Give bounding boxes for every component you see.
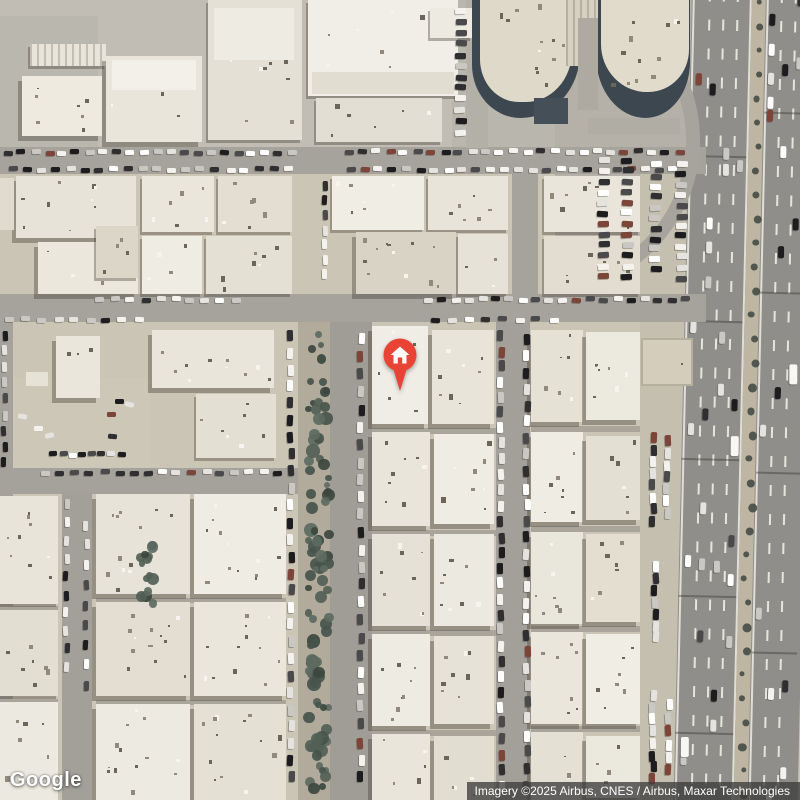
map-building [218,176,292,232]
map-building [531,330,583,422]
map-parked-car [359,562,365,573]
map-parked-car [181,167,190,172]
map-parked-car [597,211,608,218]
map-parked-car [357,422,363,433]
map-roof-detail [677,21,680,24]
map-parked-car [359,633,365,644]
map-building [428,176,508,230]
map-roof-detail [473,469,477,474]
map-parked-car [357,650,363,661]
map-parked-car [64,591,69,601]
map-parked-car [1,344,7,354]
map-parked-car [675,232,686,238]
map-parked-car [544,297,553,302]
map-roof-detail [256,559,260,562]
map-parked-car [86,318,95,323]
map-parked-car [523,663,530,674]
map-building [372,432,430,526]
map-roof-detail [567,773,571,778]
map-parked-car [288,150,297,155]
map-roof-detail [175,224,179,227]
map-parked-car [153,148,162,153]
map-mall-entry [534,98,568,124]
map-parked-car [22,166,31,171]
map-vehicle [760,424,767,436]
map-roof-detail [367,273,369,276]
map-parked-car [634,148,643,153]
map-parked-car [356,439,363,450]
map-vehicle [727,574,733,586]
map-parked-car [454,107,465,114]
map-roof-detail [260,740,262,743]
map-tree [315,702,321,708]
map-tree [305,609,313,617]
map-roof-detail [458,696,460,698]
map-roof-detail [453,467,456,469]
map-parked-car [499,453,505,464]
map-roof-detail [208,359,212,361]
map-parked-car [651,266,662,272]
map-roof-detail [37,88,39,89]
map-vehicle [711,689,717,701]
map-parked-car [83,620,88,630]
map-roof-detail [131,649,135,654]
map-roof-detail [245,120,248,122]
map-tree [307,677,321,691]
map-parked-car [172,295,181,300]
map-vehicle [780,146,786,158]
map-parked-car [497,377,503,388]
map-vehicle [782,680,788,692]
map-parked-car [523,448,530,459]
map-roof-detail [67,352,71,356]
map-building [194,494,286,594]
map-parked-car [273,471,282,476]
map-parked-car [37,318,46,323]
map-vehicle [731,436,739,456]
map-parked-car [16,149,25,154]
map-roof-detail [392,184,395,187]
map-building [356,232,456,294]
map-parked-car [65,554,70,564]
map-parked-car [650,455,656,466]
map-roof-detail [657,57,661,61]
map-parked-car [499,547,505,558]
map-parked-car [358,718,364,729]
map-parked-car [69,317,78,322]
map-roof-detail [570,397,574,400]
map-parked-car [651,584,657,595]
map-roof-detail [47,755,50,759]
map-parked-car [255,166,264,171]
map-parked-car [83,521,88,531]
map-parked-car [152,166,161,171]
map-roof-detail [135,709,138,712]
map-parked-car [187,470,196,475]
map-parked-car [651,597,657,608]
map-parked-car [497,406,504,417]
map-parked-car [101,469,110,474]
map-parked-car [287,687,293,698]
map-parked-car [525,745,531,756]
map-roof-detail [576,708,579,710]
map-building [586,634,640,724]
map-roof-detail [392,330,395,334]
map-parked-car [677,213,688,219]
map-roof-detail [466,674,470,680]
map-parked-car [55,317,64,322]
map-parked-car [288,704,294,715]
map-tree [149,599,157,607]
map-tree [320,402,329,411]
map-building [372,734,430,800]
map-roof-detail [593,396,596,398]
map-vehicle [731,399,737,411]
map-parked-car [85,539,90,549]
map-median-bush [739,695,745,701]
map-roof-detail [600,542,604,546]
map-parked-car [525,401,531,412]
map-roof-detail [544,512,546,514]
map-roof-detail [558,608,562,613]
map-roof-detail [23,226,25,229]
map-parked-car [322,194,328,204]
map-parked-car [677,253,688,259]
map-parked-car [118,452,126,457]
map-parked-car [289,636,295,647]
map-vehicle [782,64,788,76]
map-building [194,704,286,800]
map-parked-car [83,640,89,650]
map-parked-car [424,298,433,303]
map-roof-detail [621,51,625,54]
map-parked-car [550,318,559,323]
map-roof-detail [441,497,445,503]
map-roof-detail [331,134,333,137]
map-parked-car [676,150,685,155]
map-parked-car [246,150,255,155]
map-parked-car [651,760,657,771]
map-median-bush [742,623,751,632]
map-roof-detail [258,264,261,266]
map-parked-car [158,469,167,474]
map-roof-detail [42,723,44,725]
map-roof-detail [400,551,404,555]
map-roof-detail [473,195,475,196]
map-roof-detail [588,253,592,257]
map-roof-detail [168,625,171,627]
map-parked-car [260,469,269,474]
map-parked-car [666,740,672,751]
map-roof-detail [541,652,544,655]
map-roof-detail [225,367,227,369]
map-roof-detail [420,15,424,20]
map-roof-detail [29,645,33,649]
map-parked-car [287,671,294,682]
map-roof-detail [239,444,243,448]
map-parked-car [287,534,293,545]
map-vehicle [681,737,689,757]
map-parked-car [358,578,364,589]
map-tree [141,551,148,558]
map-roof-detail [101,281,104,284]
map-building [434,434,494,524]
map-parked-car [139,166,148,171]
map-roof-detail [629,36,633,41]
map-parked-car [371,148,380,153]
map-parked-car [286,755,293,766]
map-roof-detail [604,707,606,709]
map-parked-car [203,469,212,474]
map-roof-detail [252,261,256,265]
map-mall-strip [578,18,598,110]
map-parked-car [569,167,578,172]
map-roof-detail [550,193,554,199]
map-parked-car [523,368,529,379]
map-parked-car [558,297,567,303]
map-parked-car [650,184,661,190]
map-vehicle [696,73,702,85]
map-roof-detail [255,574,258,577]
map-roof-detail [177,115,179,117]
map-roof-detail [433,246,435,248]
map-tree [324,530,333,539]
map-roof-detail [363,260,367,263]
map-parked-car [599,179,610,185]
map-parked-car [117,317,126,322]
map-parked-car [32,149,41,154]
map-roof-detail [556,656,559,658]
map-parked-car [180,149,189,154]
map-tree [305,667,312,674]
map-roof-detail [626,270,630,273]
map-parked-car [142,298,151,303]
map-roof-detail [107,770,110,773]
map-roof-detail [143,717,146,720]
map-building [30,44,106,66]
map-parked-car [361,167,370,172]
map-parked-car [623,167,634,173]
map-parked-car [647,150,656,155]
map-roof-detail [233,669,237,674]
location-marker[interactable] [380,336,420,393]
map-roof-detail [200,419,202,421]
map-median [733,0,766,800]
map-parked-car [359,405,365,416]
map-roof-detail [471,488,475,491]
map-parked-car [323,226,328,236]
map-roof-detail [327,64,330,67]
map-parked-car [83,659,88,669]
map-roof-detail [16,720,19,723]
map-median-bush [741,575,747,581]
map-parked-car [496,577,503,588]
map-parked-car [651,173,662,179]
map-parked-car [215,471,224,476]
map-roof-detail [174,773,177,775]
map-parked-car [95,297,104,302]
map-roof-detail [615,386,619,391]
map-roof-detail [47,556,51,558]
map-parked-car [437,296,446,301]
map-parked-car [454,129,465,136]
map-vehicle [789,364,797,384]
map-walled-lot [641,338,693,386]
map-roof-detail [184,244,187,248]
map-parked-car [623,242,634,248]
map-vehicle [726,636,732,648]
map-parked-car [3,410,8,420]
map-parked-car [498,609,505,620]
map-parked-car [499,346,506,357]
map-roof-detail [396,707,400,712]
map-parked-car [270,165,279,171]
map-roof-detail [393,782,395,784]
map-parked-car [288,738,294,749]
map-parked-car [498,641,505,652]
map-tree [305,585,312,592]
map-parked-car [322,239,327,249]
map-roof-detail [552,39,555,43]
map-parked-car [3,393,8,403]
map-roof-detail [553,597,556,599]
map-roof-detail [259,67,263,72]
map-roof-detail [128,570,132,573]
map-roof-detail [233,182,237,185]
map-parked-car [650,468,657,479]
map-parked-car [598,252,609,259]
map-roof-detail [139,526,141,529]
map-roof-detail [106,572,110,576]
map-parked-car [663,495,669,506]
map-roof-detail [487,441,491,445]
map-pole-shadow [678,595,736,598]
map-vehicle [756,607,762,619]
map-vehicle [685,555,691,567]
map-vehicle [793,219,799,231]
map-parked-car [514,167,523,172]
map-roof-detail [184,675,187,678]
map-vehicle [702,408,708,420]
map-roof-detail [598,591,602,595]
map-parked-car [531,316,540,321]
map-parked-car [3,331,8,341]
map-building [586,332,640,420]
map-tree [305,466,315,476]
map-building [0,610,58,696]
map-parked-car [675,171,686,177]
map-roof-detail [611,83,615,86]
map-parked-car [286,499,293,510]
map-parked-car [621,188,632,194]
map-roof-detail [363,238,367,243]
map-parked-car [456,40,467,47]
map-parked-car [681,296,690,301]
map-parked-car [469,149,478,154]
map-parked-car [287,397,293,408]
map-roof-detail [264,683,267,687]
map-parked-car [322,210,327,220]
map-parked-car [286,330,292,341]
map-parked-car [171,469,180,474]
map-vehicle [796,58,800,70]
map-roof-detail [58,181,61,184]
map-parked-car [287,414,294,425]
map-roof-detail [81,115,84,119]
map-roof-detail [560,357,562,358]
map-roof-detail [237,646,240,648]
map-parked-car [523,549,530,560]
map-parked-car [64,662,70,672]
map-roof-detail [404,274,408,278]
map-parked-car [288,584,295,595]
map-roof-detail [328,34,330,36]
map-parked-car [456,118,467,124]
map-parked-car [456,63,467,70]
map-building [531,532,583,624]
map-tree [139,560,145,566]
map-parked-car [498,687,504,698]
satellite-map[interactable]: Google Imagery ©2025 Airbus, CNES / Airb… [0,0,800,800]
map-roof-detail [85,99,88,103]
map-parked-car [649,479,655,490]
map-roof-detail [449,394,453,400]
map-parked-car [499,656,505,667]
map-roof-detail [448,608,451,612]
map-parked-car [655,168,664,173]
map-tree [313,638,319,644]
map-parked-car [57,151,66,156]
map-roof-detail [535,595,537,597]
map-parked-car [288,653,295,664]
map-roof-detail [336,181,340,185]
map-parked-car [70,470,79,475]
google-logo[interactable]: Google [10,769,82,792]
map-roof-detail [131,614,135,618]
map-vehicle [767,97,773,109]
map-roof-detail [202,722,205,726]
map-building [96,704,190,800]
map-roof-detail [148,645,152,648]
map-roof-detail [616,461,620,466]
map-building [332,176,424,230]
map-building [531,632,583,724]
map-parked-car [78,452,86,457]
map-roof-detail [150,628,153,632]
map-median-bush [748,311,754,317]
map-parked-car [456,30,467,36]
map-parked-car [651,226,662,232]
map-parked-car [498,469,505,480]
map-roof-detail [617,261,620,264]
map-parked-car [614,296,623,301]
map-parked-car [322,269,327,279]
map-parked-car [455,53,466,59]
map-parked-car [524,150,533,155]
map-building [142,176,214,232]
map-roof-detail [269,62,272,64]
map-parked-car [232,297,241,302]
map-median-bush [748,503,757,512]
map-roof-detail [542,612,546,615]
map-roof-detail [35,95,38,98]
map-tree [324,482,330,488]
map-roof-detail [452,786,454,789]
map-roof-detail [569,334,572,337]
map-parked-car [503,296,512,301]
map-parked-car [497,594,503,605]
map-roof-detail [170,514,173,517]
